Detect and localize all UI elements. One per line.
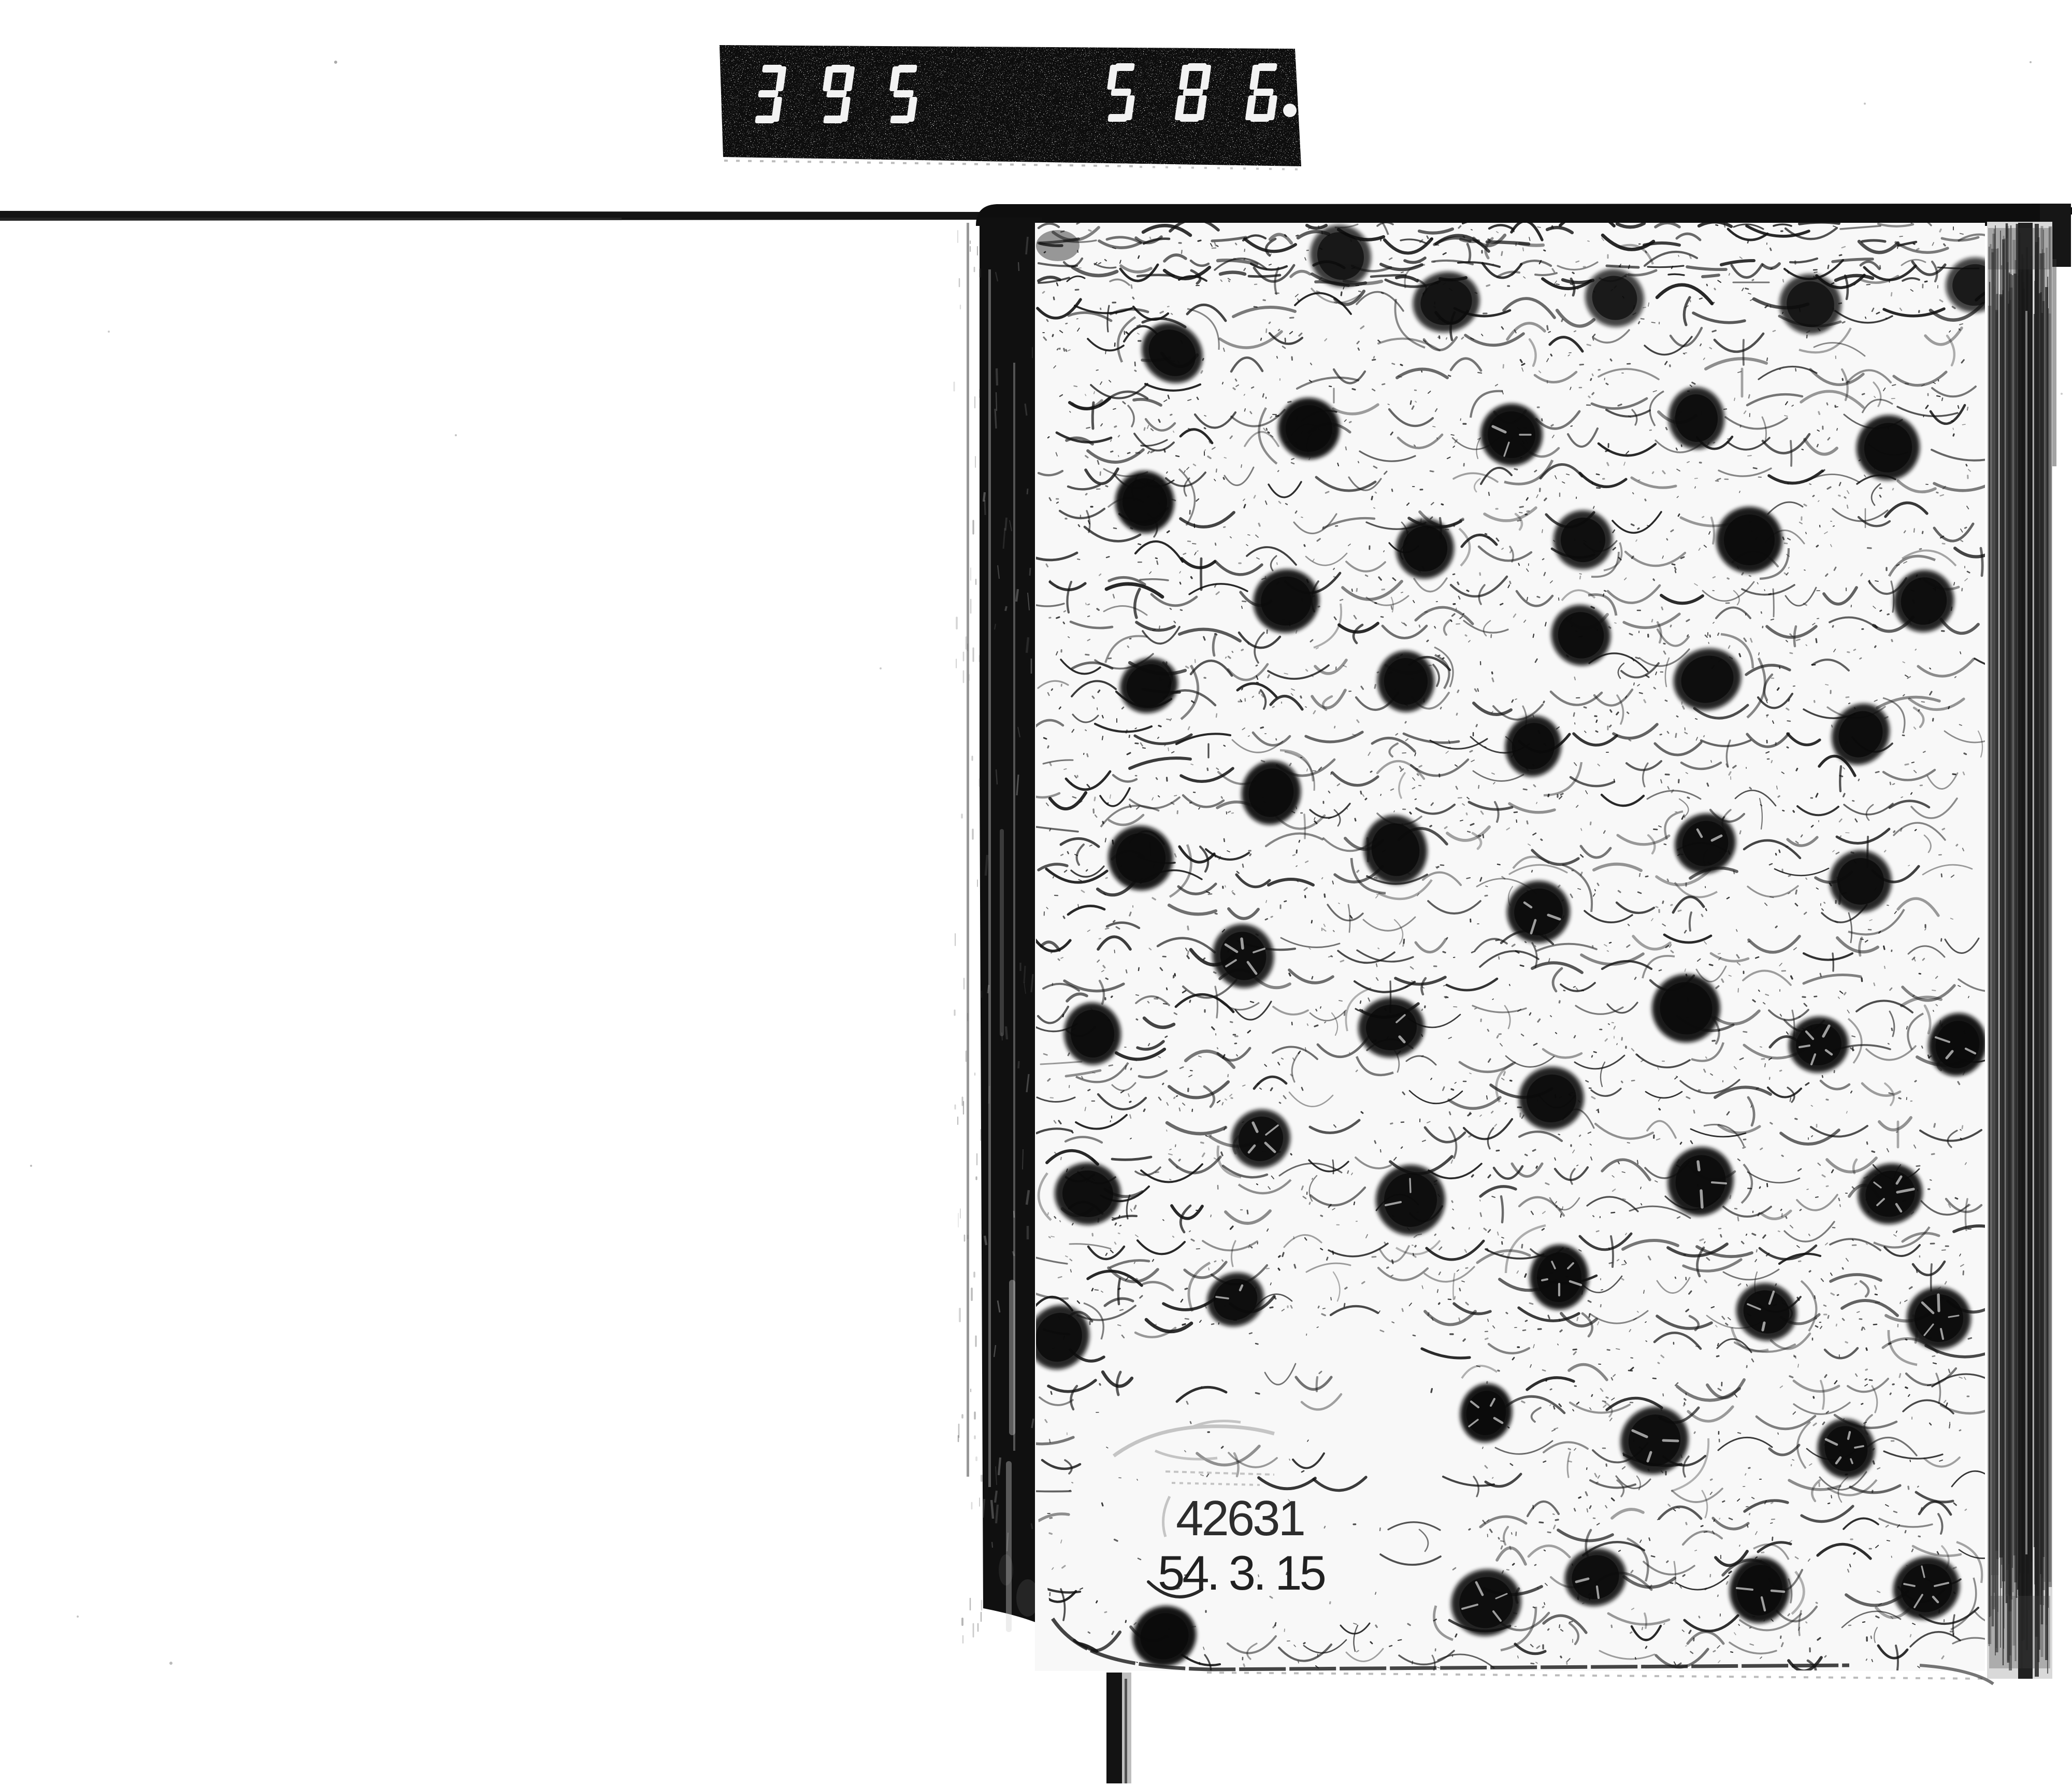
svg-text:54. 3. 15: 54. 3. 15 (1158, 1546, 1325, 1600)
svg-text:42631: 42631 (1176, 1491, 1304, 1546)
